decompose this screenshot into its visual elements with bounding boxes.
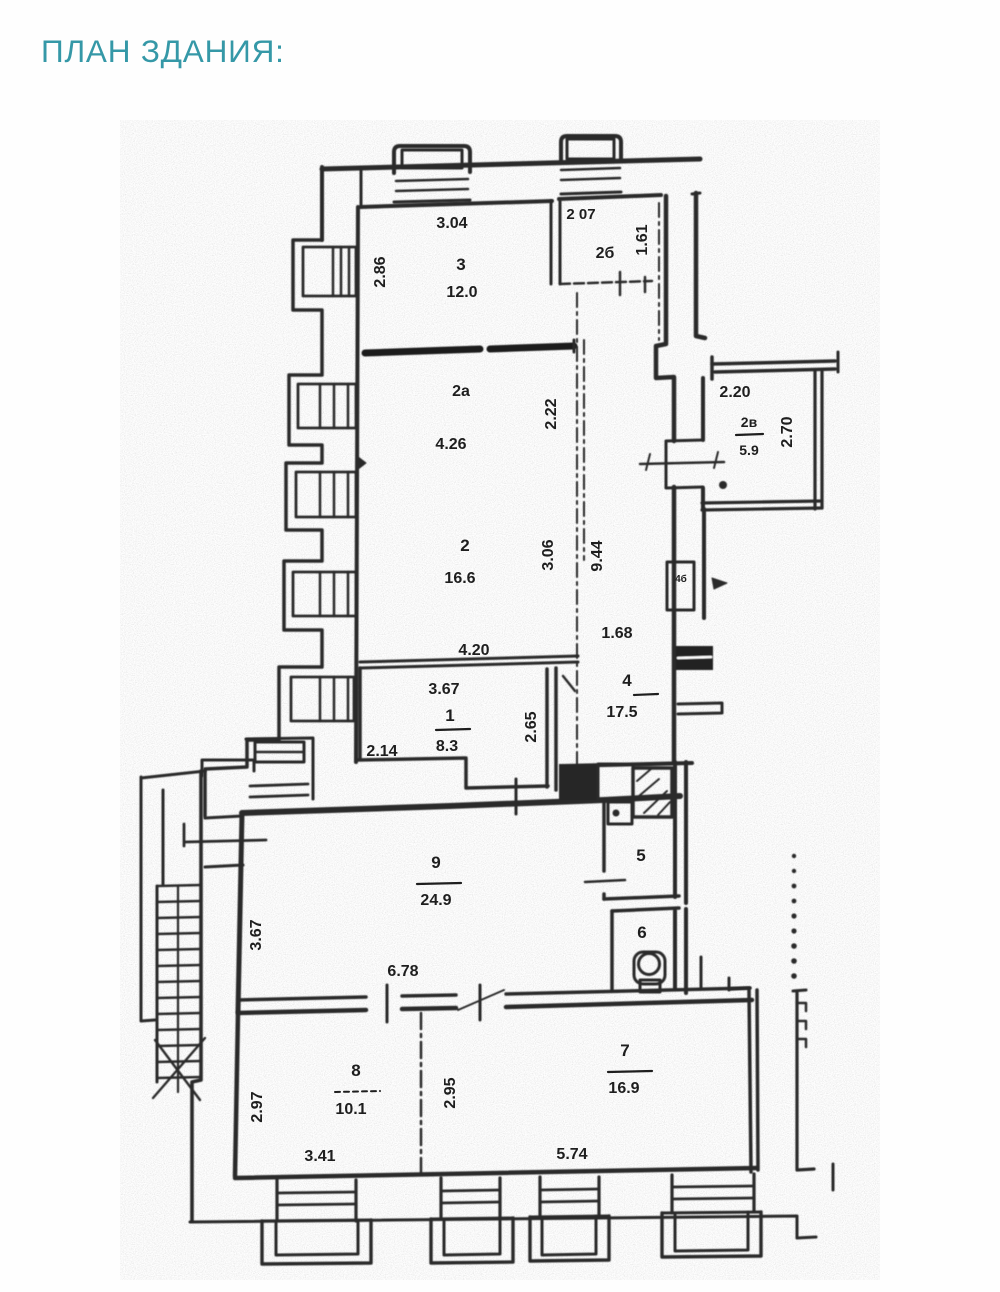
svg-text:10.1: 10.1	[335, 1101, 366, 1118]
svg-text:1: 1	[445, 706, 454, 725]
svg-text:7: 7	[620, 1041, 629, 1060]
svg-text:9: 9	[431, 853, 440, 872]
svg-text:6: 6	[637, 923, 646, 942]
svg-text:2.86: 2.86	[372, 256, 389, 287]
svg-text:3: 3	[456, 255, 465, 274]
svg-text:2а: 2а	[452, 383, 470, 400]
svg-text:2.95: 2.95	[442, 1077, 459, 1108]
svg-text:4: 4	[622, 671, 632, 690]
svg-text:4б: 4б	[675, 573, 687, 585]
svg-text:8.3: 8.3	[436, 738, 458, 755]
svg-text:8: 8	[351, 1061, 360, 1080]
svg-text:2.65: 2.65	[523, 711, 540, 742]
svg-text:24.9: 24.9	[420, 892, 451, 909]
svg-text:2б: 2б	[596, 245, 615, 262]
svg-text:17.5: 17.5	[606, 704, 637, 721]
svg-text:3.67: 3.67	[248, 919, 265, 950]
svg-text:12.0: 12.0	[446, 284, 477, 301]
svg-text:4.20: 4.20	[458, 642, 489, 659]
svg-text:9.44: 9.44	[589, 540, 606, 571]
svg-text:5.9: 5.9	[739, 442, 759, 458]
svg-text:2 07: 2 07	[566, 206, 595, 223]
svg-text:2.70: 2.70	[779, 416, 796, 447]
svg-text:3.41: 3.41	[304, 1148, 335, 1165]
svg-text:2.14: 2.14	[366, 743, 397, 760]
svg-text:6.78: 6.78	[387, 963, 418, 980]
svg-text:2.22: 2.22	[543, 398, 560, 429]
svg-text:16.9: 16.9	[608, 1080, 639, 1097]
svg-text:1.68: 1.68	[601, 625, 632, 642]
svg-text:5.74: 5.74	[556, 1146, 587, 1163]
svg-text:16.6: 16.6	[444, 570, 475, 587]
svg-text:3.67: 3.67	[428, 681, 459, 698]
svg-text:2в: 2в	[741, 414, 758, 430]
svg-text:3.04: 3.04	[436, 215, 467, 232]
svg-text:2.20: 2.20	[719, 384, 750, 401]
svg-text:2.97: 2.97	[249, 1091, 266, 1122]
svg-text:1.61: 1.61	[634, 224, 651, 255]
svg-text:3.06: 3.06	[540, 539, 557, 570]
svg-text:5: 5	[636, 846, 645, 865]
svg-text:4.26: 4.26	[435, 436, 466, 453]
svg-text:2: 2	[460, 536, 469, 555]
